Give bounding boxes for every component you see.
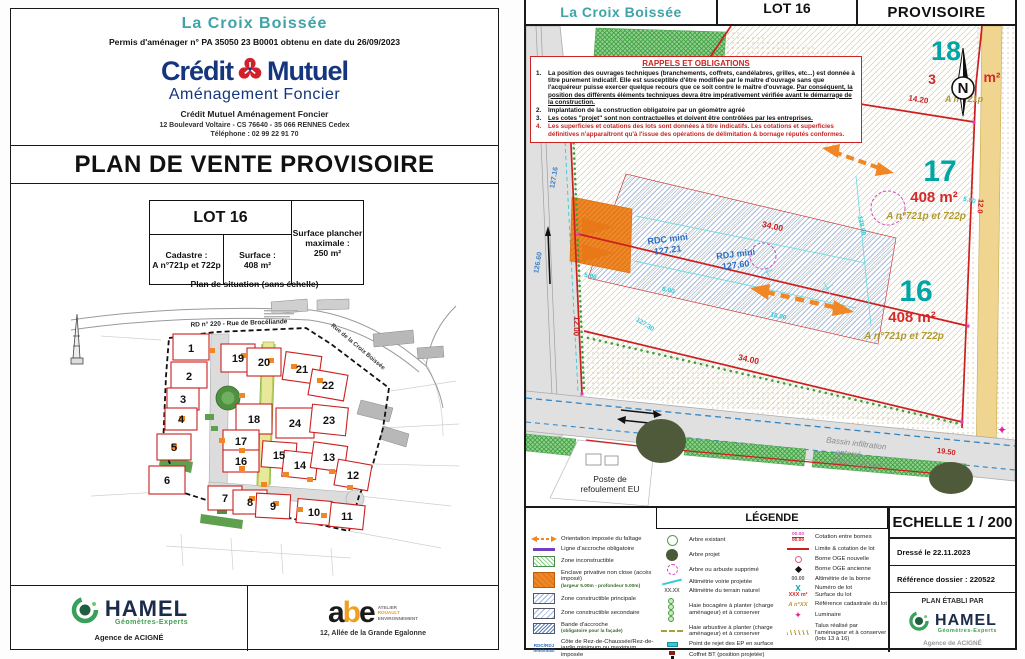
north-spire-sketch xyxy=(71,314,83,364)
hamel-footer-cell: HAMEL Géomètres-Experts Agence de ACIGNÉ xyxy=(11,586,248,651)
lot-limit-icon xyxy=(785,548,811,550)
surface-cell: Surface : 408 m² xyxy=(224,235,292,285)
map-lot-number: 10 xyxy=(308,507,320,519)
cartouche: ECHELLE 1 / 200 Dressé le 22.11.2023 Réf… xyxy=(890,508,1015,652)
svg-text:12.0: 12.0 xyxy=(975,199,985,214)
established-by: PLAN ÉTABLI PAR xyxy=(890,593,1015,610)
abe-letter-e: e xyxy=(359,596,374,629)
org-line: Crédit Mutuel Aménagement Foncier xyxy=(11,109,498,119)
svg-text:m²: m² xyxy=(983,69,1000,85)
ep-outlet-icon xyxy=(659,642,685,647)
svg-text:A n°721p et 722p: A n°721p et 722p xyxy=(885,211,966,222)
lot-number-icon: X XXX m² xyxy=(785,585,811,598)
date-label: Dressé le 22.11.2023 xyxy=(890,539,1015,566)
map-lot-number: 16 xyxy=(235,456,247,468)
map-lot-number: 13 xyxy=(323,452,335,464)
brand-subtitle: Aménagement Foncier xyxy=(11,86,498,104)
map-lot-number: 23 xyxy=(323,415,335,427)
right-header-project: La Croix Boissée xyxy=(526,0,716,24)
legend-col-2: Arbre existant Arbre projet Arbre ou arb… xyxy=(659,535,783,659)
map-lot-number: 1 xyxy=(188,343,194,355)
svg-text:A n°721p et 722p: A n°721p et 722p xyxy=(863,331,944,342)
lot-cell: LOT 16 xyxy=(150,201,292,235)
cartouche-hamel-logo: HAMEL Géomètres-Experts Agence de ACIGNÉ xyxy=(890,610,1015,647)
hedge-arbustive-icon xyxy=(659,630,685,632)
map-lot-number: 6 xyxy=(164,475,170,487)
legend-title: LÉGENDE xyxy=(656,508,888,529)
faitage-arrow-icon xyxy=(531,535,557,543)
map-lot-number: 22 xyxy=(322,380,334,392)
cadastre-value: A n°721p et 722p xyxy=(152,260,221,270)
borne-old-icon xyxy=(785,567,811,572)
map-lot-number: 21 xyxy=(296,364,308,376)
hamel-logo: HAMEL Géomètres-Experts xyxy=(70,595,188,630)
map-lot-number: 4 xyxy=(178,414,185,426)
mutuel-word: Mutuel xyxy=(267,56,348,87)
cadastre-ref-icon: A n°XX xyxy=(785,602,811,608)
bande-accroche-icon xyxy=(531,623,557,634)
zone-inconstructible-icon xyxy=(531,556,557,567)
rappels-box: RAPPELS ET OBLIGATIONS 1. La position de… xyxy=(530,56,862,143)
street-tree xyxy=(636,419,686,463)
map-lot-number: 7 xyxy=(222,493,228,505)
abe-footer-cell: abe ATELIER ROUAULT ENVIRONNEMENT 12, Al… xyxy=(248,586,498,651)
map-lot-number: 12 xyxy=(347,470,359,482)
legend-col-3: 00.00 00.00 Cotation entre bornes Limite… xyxy=(785,532,888,642)
borne-altimetry-icon: 00.00 xyxy=(785,576,811,582)
credit-mutuel-logo: Crédit Mutuel xyxy=(11,54,498,89)
abe-address: 12, Allée de la Grande Egalonne xyxy=(320,630,426,637)
situation-caption: Plan de situation (sans échelle) xyxy=(11,279,498,289)
map-lot-number: 18 xyxy=(248,414,260,426)
accroche-line-icon xyxy=(531,548,557,550)
bank-address: 12 Boulevard Voltaire - CS 76640 - 35 06… xyxy=(11,122,498,129)
hamel-swirl-icon xyxy=(908,610,930,637)
floor-label: Surface plancher maximale : xyxy=(293,228,363,248)
left-footer: HAMEL Géomètres-Experts Agence de ACIGNÉ… xyxy=(11,586,498,651)
svg-text:3: 3 xyxy=(928,71,936,87)
lot-summary-table: LOT 16 Surface plancher maximale : 250 m… xyxy=(149,200,364,285)
rappels-item-3: 3. Les cotes "projet" sont non contractu… xyxy=(536,115,856,122)
bank-phone: Téléphone : 02 99 22 91 70 xyxy=(11,131,498,138)
hamel-swirl-icon xyxy=(70,595,100,630)
left-header: La Croix Boissée Permis d'aménager n° PA… xyxy=(11,9,498,146)
page-right: La Croix Boissée LOT 16 PROVISOIRE xyxy=(524,0,1017,650)
dossier-ref: Référence dossier : 220522 xyxy=(890,566,1015,593)
hamel-agency: Agence de ACIGNÉ xyxy=(95,633,164,642)
abe-logo: abe ATELIER ROUAULT ENVIRONNEMENT xyxy=(328,600,418,626)
legend-panel: LÉGENDE Orientation imposée du faîtage L… xyxy=(526,508,890,652)
cadastre-cell: Cadastre : A n°721p et 722p xyxy=(150,235,224,285)
cartouche-hamel-name: HAMEL xyxy=(935,613,997,628)
svg-text:12.00: 12.00 xyxy=(571,316,581,337)
right-bottom-strip: LÉGENDE Orientation imposée du faîtage L… xyxy=(526,506,1015,652)
rdc-rdj-icon: RDC/RDJ mini/maxi xyxy=(531,643,557,653)
sale-plan-area: 14.20 34.00 34.00 12.00 12.0 19.50 5.00 … xyxy=(526,26,1015,506)
floor-value: 250 m² xyxy=(314,248,341,258)
hedge-bocagere-icon xyxy=(659,598,685,622)
abe-letter-a: a xyxy=(328,596,343,629)
map-lot-number: 17 xyxy=(235,436,247,448)
map-lot-number: 8 xyxy=(247,497,253,509)
surface-value: 408 m² xyxy=(244,260,271,270)
right-header-status: PROVISOIRE xyxy=(858,0,1015,24)
altimetry-road-icon xyxy=(659,581,685,583)
map-lot-number: 15 xyxy=(273,450,285,462)
rappels-title: RAPPELS ET OBLIGATIONS xyxy=(536,59,856,68)
rappels-item-4: 4. Les superficies et cotations des lots… xyxy=(536,123,856,137)
right-header-lot: LOT 16 xyxy=(716,0,858,24)
svg-text:N: N xyxy=(958,80,969,97)
map-lot-number: 9 xyxy=(270,501,276,513)
project-name: La Croix Boissée xyxy=(11,15,498,33)
map-lot-number: 19 xyxy=(232,353,244,365)
zone-secondaire-icon xyxy=(531,608,557,619)
lot18-number: 18 xyxy=(931,36,961,66)
cartouche-hamel-sub: Géomètres-Experts xyxy=(938,628,997,634)
abe-line3: ENVIRONNEMENT xyxy=(378,616,418,621)
map-lot-number: 24 xyxy=(289,418,302,430)
luminaire-legend-icon: ✦ xyxy=(785,611,811,620)
zone-principale-icon xyxy=(531,593,557,604)
svg-text:refoulement EU: refoulement EU xyxy=(580,484,639,494)
credit-word: Crédit xyxy=(161,56,233,87)
scale-label: ECHELLE 1 / 200 xyxy=(890,508,1015,539)
bt-box-icon xyxy=(659,651,685,659)
tree-project-icon xyxy=(659,549,685,561)
tree-existing-icon xyxy=(659,535,685,546)
rappels-item-2: 2. Implantation de la construction oblig… xyxy=(536,107,856,114)
altimetry-ground-icon: XX.XX xyxy=(659,588,685,594)
right-header: La Croix Boissée LOT 16 PROVISOIRE xyxy=(526,0,1015,26)
hamel-name: HAMEL xyxy=(105,599,188,619)
cadastre-label: Cadastre : xyxy=(165,250,207,260)
cotation-icon: 00.00 00.00 xyxy=(785,532,811,543)
permit-line: Permis d'aménager n° PA 35050 23 B0001 o… xyxy=(11,37,498,47)
street-tree xyxy=(929,462,973,494)
page-left: La Croix Boissée Permis d'aménager n° PA… xyxy=(10,8,499,650)
floor-cell: Surface plancher maximale : 250 m² xyxy=(292,201,364,285)
surface-label: Surface : xyxy=(239,250,276,260)
hamel-subtitle: Géomètres-Experts xyxy=(115,619,188,626)
svg-text:408 m²: 408 m² xyxy=(888,309,936,326)
map-lot-number: 2 xyxy=(186,371,192,383)
tree-removed-icon xyxy=(659,564,685,575)
page-title: PLAN DE VENTE PROVISOIRE xyxy=(74,151,434,179)
map-caption-lines xyxy=(264,310,298,317)
map-lot-number: 20 xyxy=(258,357,270,369)
cartouche-agency: Agence de ACIGNÉ xyxy=(923,640,982,647)
svg-text:408 m²: 408 m² xyxy=(910,189,958,206)
situation-map: 1 2 3 4 5 6 7 8 9 10 11 12 13 14 15 16 1… xyxy=(66,296,461,580)
talus-icon xyxy=(785,630,811,635)
abe-letter-b: b xyxy=(343,596,359,629)
plan-title-box: PLAN DE VENTE PROVISOIRE xyxy=(11,146,498,184)
legend-col-1: Orientation imposée du faîtage Ligne d'a… xyxy=(531,535,657,658)
map-lot-number: 3 xyxy=(180,394,186,406)
lot16-number: 16 xyxy=(899,275,932,308)
map-lot-number: 11 xyxy=(341,511,353,523)
map-lot-number: 5 xyxy=(171,442,177,454)
credit-mutuel-emblem-icon xyxy=(235,54,265,89)
left-main-area: LOT 16 Surface plancher maximale : 250 m… xyxy=(11,184,498,586)
enclave-icon xyxy=(531,572,557,588)
lot17-number: 17 xyxy=(923,155,956,188)
rappels-item-1: 1. La position des ouvrages techniques (… xyxy=(536,70,856,106)
borne-new-icon xyxy=(785,556,811,563)
svg-text:Poste de: Poste de xyxy=(593,474,627,484)
luminaire-icon: ✦ xyxy=(997,423,1007,437)
map-lot-number: 14 xyxy=(294,460,307,472)
